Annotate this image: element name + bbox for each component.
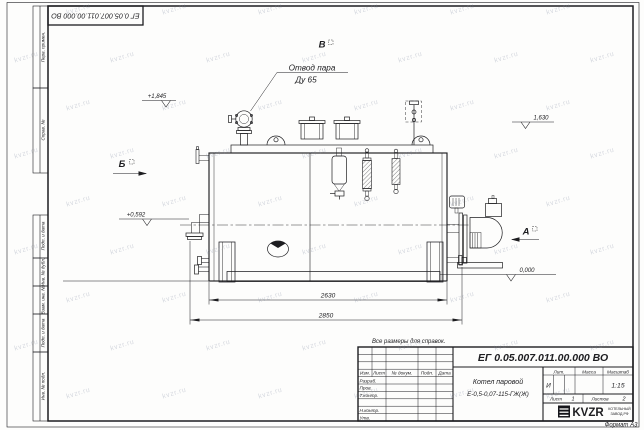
strip-label: Подп. и дата (41, 318, 46, 347)
drum-hatch-1 (299, 117, 325, 139)
title-right-cells: Лит. Масса Масштаб И 1:15 Лист 1 Листов … (546, 369, 629, 402)
title-product-line1: Котел паровой (473, 378, 523, 386)
org-logo: KVZR КОТЕЛЬНЫЙ ЗАВОД.РФ (558, 406, 631, 420)
drawing-canvas: ЕГ 0.05.007.011.00.000 ВО Перв. примен. … (0, 0, 644, 430)
scale-value: 1:15 (611, 383, 624, 390)
view-label-b: Б (113, 159, 147, 176)
title-column-headers: Изм. Лист № докум. Подп. Дата (360, 371, 451, 376)
elevation-ground: 0,000 (519, 268, 535, 274)
svg-text:А: А (522, 227, 530, 238)
svg-text:В: В (319, 40, 326, 51)
callout-line2: Ду 65 (294, 76, 317, 85)
col-sign: Подп. (421, 371, 433, 376)
row-tcontrol: Т.контр. (360, 393, 379, 398)
strip-label: Справ. № (41, 120, 46, 141)
row-ncontrol: Н.контр. (360, 408, 380, 413)
title-product-line2: Е-0,5-0,07-115-ГЖ(Ж) (467, 391, 529, 398)
level-column-1 (363, 149, 372, 201)
sheet-label: Лист (549, 397, 562, 402)
sheet-value: 1 (571, 397, 574, 403)
row-developed: Разраб. (360, 378, 377, 383)
burner-elbow (186, 215, 209, 240)
boiler-shell (209, 153, 447, 281)
lifting-lug-left (267, 136, 285, 145)
scale-header: Масштаб (607, 369, 629, 374)
frame-strip-labels: Перв. примен. Справ. № Подп. и дата Инв.… (41, 32, 46, 401)
frame-strip (33, 6, 48, 421)
steam-outlet-valve (229, 111, 253, 145)
drawing-sheet: ЕГ 0.05.007.011.00.000 ВО Перв. примен. … (0, 0, 644, 430)
row-checked: Пров. (360, 386, 372, 391)
strip-label: Инв. № дубл. (41, 258, 46, 286)
front-nozzle-2 (195, 265, 210, 274)
strip-label: Подп. и дата (41, 221, 46, 250)
elevation-valve-top: +1,845 (148, 94, 167, 100)
sheets-value: 2 (621, 397, 625, 403)
elevation-right-top: 1,630 (533, 116, 549, 122)
format-label: Формат А3 (605, 423, 638, 429)
view-label-a: А (511, 227, 539, 242)
svg-text:Б: Б (119, 159, 126, 170)
level-column-2 (392, 149, 400, 194)
mass-header: Масса (582, 369, 596, 374)
sheets-label: Листов (590, 397, 609, 402)
callout-line1: Отвод пара (289, 64, 336, 73)
title-signature-rows: Разраб. Пров. Т.контр. Н.контр. Утв. (360, 378, 380, 420)
drum-hatch-2 (334, 117, 360, 139)
skid-beam (227, 272, 440, 282)
col-date: Дата (437, 371, 451, 376)
strip-label: Взам. инв. № (41, 286, 46, 314)
col-doc: № докум. (392, 371, 413, 376)
dim-shell-length: 2630 (320, 293, 336, 300)
lifting-lug-right (412, 136, 430, 145)
sight-glass-cylinder (330, 148, 347, 200)
org-name-line2: ЗАВОД.РФ (610, 412, 628, 416)
boiler-side-view (63, 101, 556, 282)
row-approved: Утв. (360, 415, 371, 420)
dim-overall-length: 2850 (318, 313, 334, 320)
lit-value: И (546, 383, 551, 390)
front-top-valve (196, 147, 209, 164)
strip-label: Инв. № подл. (41, 372, 46, 401)
manhole (268, 241, 289, 257)
elevation-burner-axis: +0,592 (127, 213, 146, 219)
front-nozzle-1 (198, 257, 210, 265)
view-label-v: В (319, 40, 333, 51)
burner-pump-unit (447, 196, 503, 269)
steam-outlet-callout: Отвод пара Ду 65 (251, 64, 349, 112)
top-stamp-number: ЕГ 0.05.007.011.00.000 ВО (51, 12, 140, 21)
title-doc-number: ЕГ 0.05.007.011.00.000 ВО (478, 352, 608, 364)
lit-header: Лит. (553, 369, 565, 374)
support-foot-right (427, 242, 443, 282)
org-name-line1: КОТЕЛЬНЫЙ (608, 407, 631, 411)
org-logo-text: KVZR (572, 407, 604, 419)
col-list: Лист (372, 371, 385, 376)
top-platform (231, 145, 433, 153)
reference-note: Все размеры для справок. (372, 339, 446, 345)
col-izm: Изм. (360, 371, 370, 376)
strip-label: Перв. примен. (41, 32, 46, 63)
